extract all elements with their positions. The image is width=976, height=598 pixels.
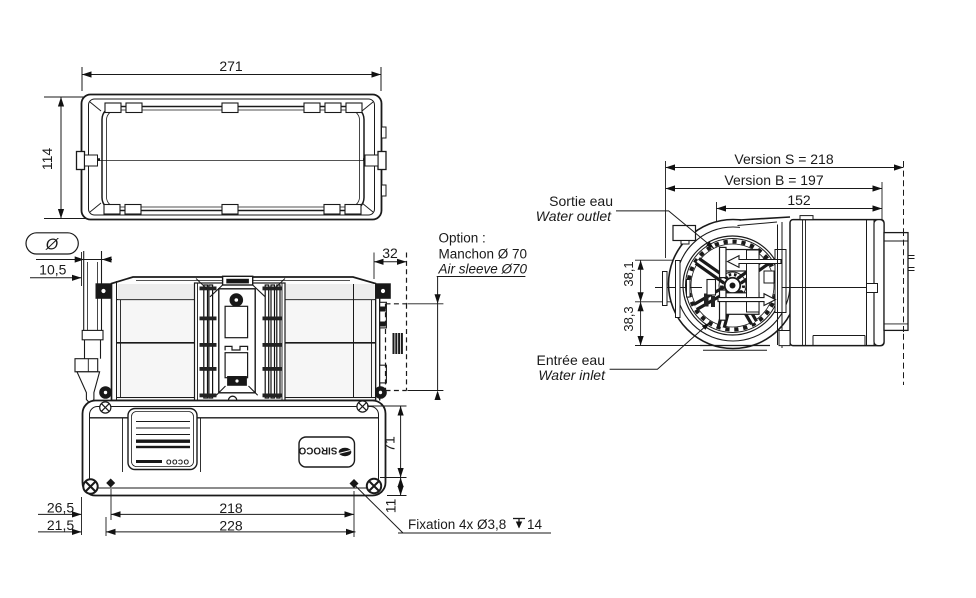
svg-text:38,3: 38,3 bbox=[621, 306, 636, 331]
svg-text:SIROCO: SIROCO bbox=[298, 444, 337, 455]
svg-text:38,1: 38,1 bbox=[621, 261, 636, 286]
svg-text:32: 32 bbox=[382, 245, 398, 261]
svg-text:Water inlet: Water inlet bbox=[538, 367, 606, 383]
svg-text:Version S = 218: Version S = 218 bbox=[734, 151, 833, 167]
svg-text:Option :: Option : bbox=[439, 231, 486, 246]
svg-text:21,5: 21,5 bbox=[47, 517, 74, 533]
svg-text:26,5: 26,5 bbox=[47, 500, 74, 516]
svg-text:228: 228 bbox=[219, 518, 243, 534]
svg-text:Entrée eau: Entrée eau bbox=[537, 352, 606, 368]
svg-text:Water outlet: Water outlet bbox=[536, 208, 612, 224]
svg-text:Fixation 4x Ø3,8: Fixation 4x Ø3,8 bbox=[408, 517, 506, 532]
svg-text:Air sleeve Ø70: Air sleeve Ø70 bbox=[438, 262, 528, 277]
svg-text:Sortie eau: Sortie eau bbox=[549, 193, 613, 209]
svg-text:11: 11 bbox=[383, 499, 399, 514]
svg-text:152: 152 bbox=[787, 192, 811, 208]
svg-text:Ø: Ø bbox=[45, 237, 60, 254]
svg-text:271: 271 bbox=[219, 58, 243, 74]
svg-text:114: 114 bbox=[39, 148, 55, 171]
svg-text:10,5: 10,5 bbox=[39, 262, 66, 278]
svg-text:14: 14 bbox=[527, 517, 543, 532]
svg-text:OCOO: OCOO bbox=[166, 458, 189, 465]
svg-text:218: 218 bbox=[219, 500, 243, 516]
svg-text:71: 71 bbox=[382, 436, 398, 452]
svg-text:Manchon Ø 70: Manchon Ø 70 bbox=[439, 247, 528, 262]
svg-text:Version B = 197: Version B = 197 bbox=[724, 172, 823, 188]
